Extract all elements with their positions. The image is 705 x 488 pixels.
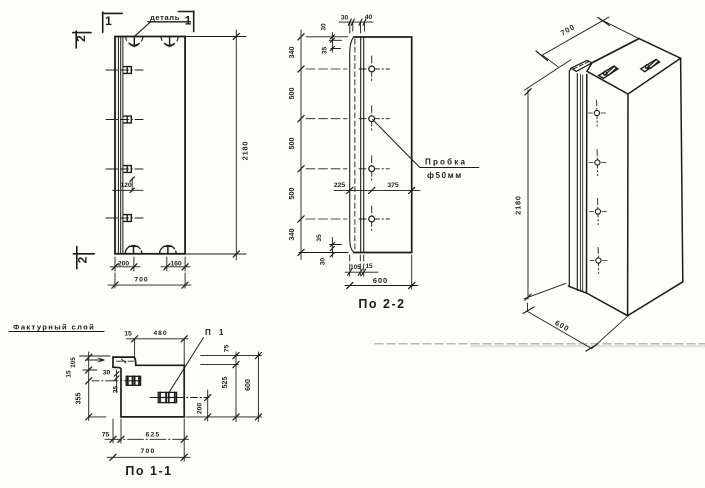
svg-text:700: 700 bbox=[134, 277, 148, 284]
svg-text:75: 75 bbox=[224, 345, 231, 353]
svg-text:30: 30 bbox=[320, 258, 327, 266]
svg-text:600: 600 bbox=[373, 276, 388, 285]
svg-text:225: 225 bbox=[334, 182, 346, 189]
svg-text:105: 105 bbox=[70, 357, 77, 368]
svg-text:355: 355 bbox=[76, 393, 83, 405]
svg-text:2: 2 bbox=[76, 256, 90, 263]
svg-text:160: 160 bbox=[170, 260, 182, 267]
svg-text:75: 75 bbox=[102, 432, 110, 439]
svg-text:340: 340 bbox=[287, 47, 296, 59]
svg-text:деталь: деталь bbox=[150, 13, 180, 22]
svg-text:35: 35 bbox=[316, 234, 323, 242]
svg-text:700: 700 bbox=[559, 22, 577, 37]
svg-text:2180: 2180 bbox=[514, 195, 523, 215]
svg-text:П 1: П 1 bbox=[205, 328, 226, 337]
svg-text:2180: 2180 bbox=[241, 141, 250, 161]
svg-text:500: 500 bbox=[287, 138, 296, 150]
svg-text:40: 40 bbox=[365, 14, 373, 21]
svg-text:1: 1 bbox=[105, 14, 112, 28]
svg-text:15: 15 bbox=[66, 370, 73, 378]
svg-text:Пробка: Пробка bbox=[425, 158, 467, 167]
svg-text:525: 525 bbox=[222, 377, 229, 389]
svg-text:200: 200 bbox=[118, 260, 130, 267]
svg-text:500: 500 bbox=[287, 88, 296, 100]
svg-text:2: 2 bbox=[74, 35, 88, 42]
svg-text:340: 340 bbox=[287, 229, 296, 241]
svg-text:375: 375 bbox=[387, 182, 399, 189]
svg-text:ф50мм: ф50мм bbox=[427, 171, 463, 180]
svg-text:30: 30 bbox=[341, 15, 349, 22]
svg-text:1: 1 bbox=[185, 14, 192, 28]
svg-text:120: 120 bbox=[120, 182, 132, 189]
svg-text:35: 35 bbox=[113, 386, 120, 394]
svg-text:15: 15 bbox=[365, 263, 373, 270]
svg-text:15: 15 bbox=[124, 331, 132, 338]
svg-text:480: 480 bbox=[153, 330, 167, 337]
svg-text:700: 700 bbox=[141, 448, 156, 455]
svg-text:35: 35 bbox=[322, 47, 329, 55]
svg-text:Фактурный слой: Фактурный слой bbox=[13, 323, 95, 332]
svg-text:500: 500 bbox=[287, 188, 296, 200]
svg-text:200: 200 bbox=[197, 403, 204, 415]
svg-text:По 1-1: По 1-1 bbox=[125, 464, 172, 478]
svg-text:105: 105 bbox=[350, 264, 361, 271]
svg-text:30: 30 bbox=[321, 23, 328, 31]
svg-text:По 2-2: По 2-2 bbox=[358, 297, 405, 311]
svg-text:30: 30 bbox=[103, 370, 111, 377]
svg-text:600: 600 bbox=[245, 379, 252, 391]
svg-text:625: 625 bbox=[146, 431, 161, 438]
